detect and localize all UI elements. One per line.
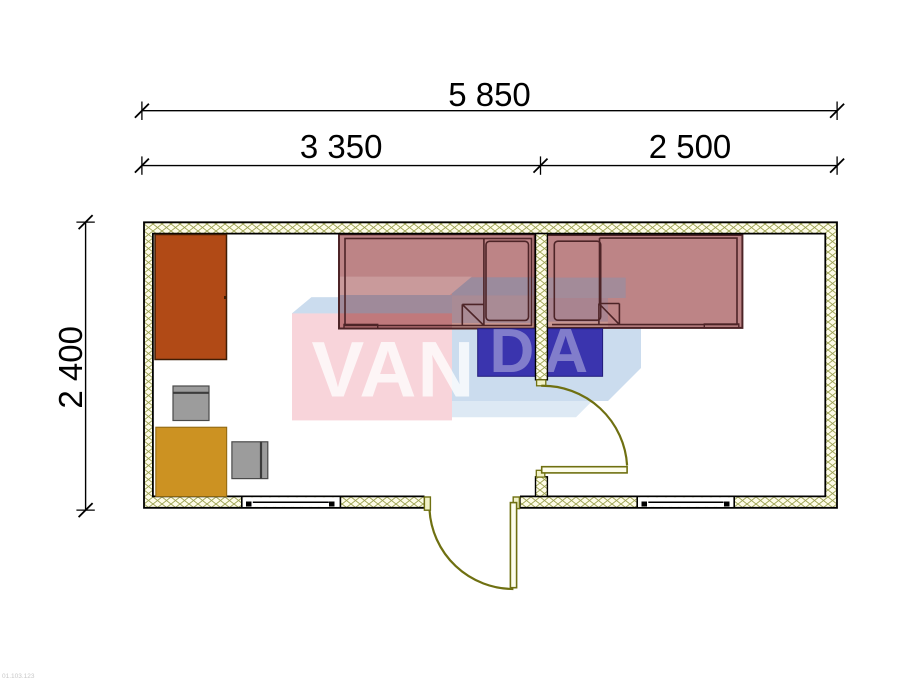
svg-text:01.103.123: 01.103.123 [2, 673, 35, 680]
svg-text:3 350: 3 350 [300, 128, 383, 165]
svg-text:VAN: VAN [312, 325, 476, 414]
svg-text:2 400: 2 400 [52, 326, 89, 409]
svg-text:5 850: 5 850 [448, 76, 531, 113]
svg-text:2 500: 2 500 [649, 128, 732, 165]
